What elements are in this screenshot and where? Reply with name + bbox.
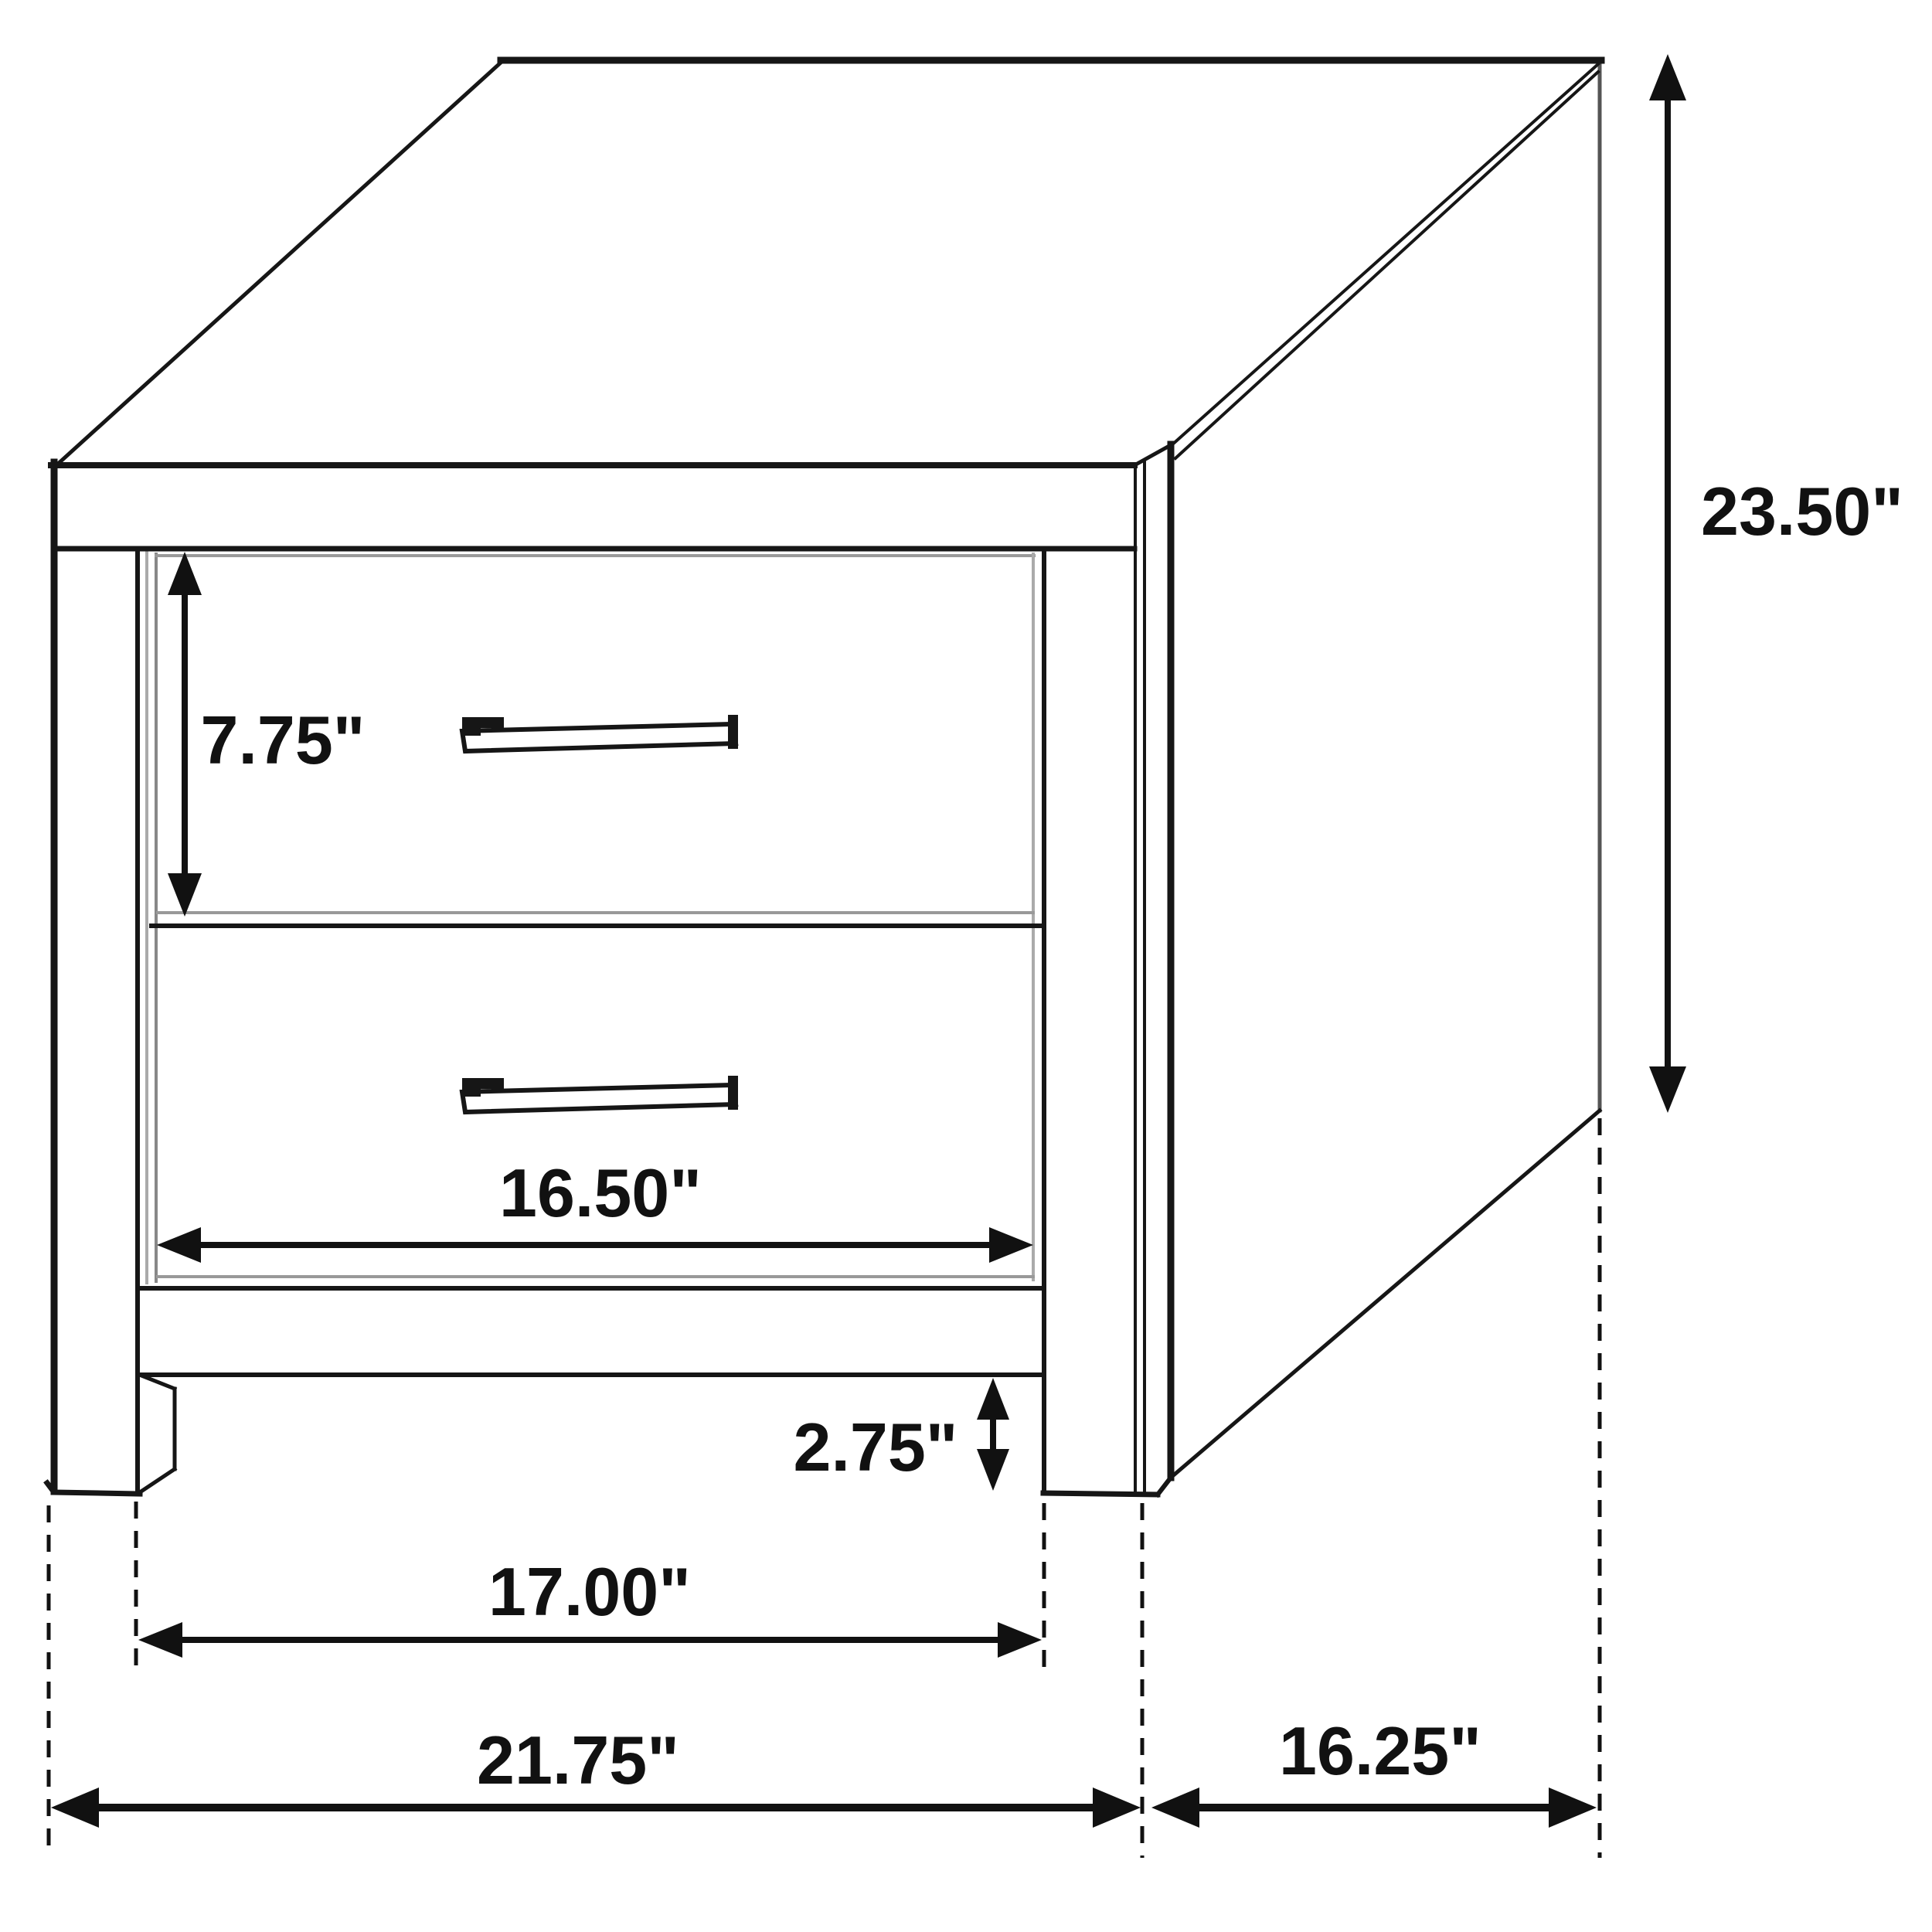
label-drawer-width: 16.50" [499, 1155, 702, 1231]
right-leg-bottom [1043, 1493, 1158, 1495]
label-inner-width: 17.00" [488, 1553, 691, 1630]
handle-right-cap [728, 715, 738, 749]
label-depth: 16.25" [1279, 1713, 1481, 1789]
label-drawer-height: 7.75" [201, 702, 366, 778]
label-overall-width: 21.75" [477, 1722, 679, 1798]
label-leg-height: 2.75" [794, 1409, 958, 1485]
label-overall-height: 23.50" [1701, 473, 1903, 549]
front-face [54, 465, 1171, 1494]
nightstand-dimension-diagram: 23.50" 7.75" 16.50" 2.75" 17.00" 21.75" … [0, 0, 1932, 1932]
dimension-arrow-depth [1151, 1787, 1597, 1828]
handle-right-cap [728, 1076, 738, 1110]
diagram-canvas: 23.50" 7.75" 16.50" 2.75" 17.00" 21.75" … [0, 0, 1932, 1932]
nightstand-body [54, 63, 1601, 1494]
dimension-arrow-overall-height [1649, 54, 1686, 1113]
